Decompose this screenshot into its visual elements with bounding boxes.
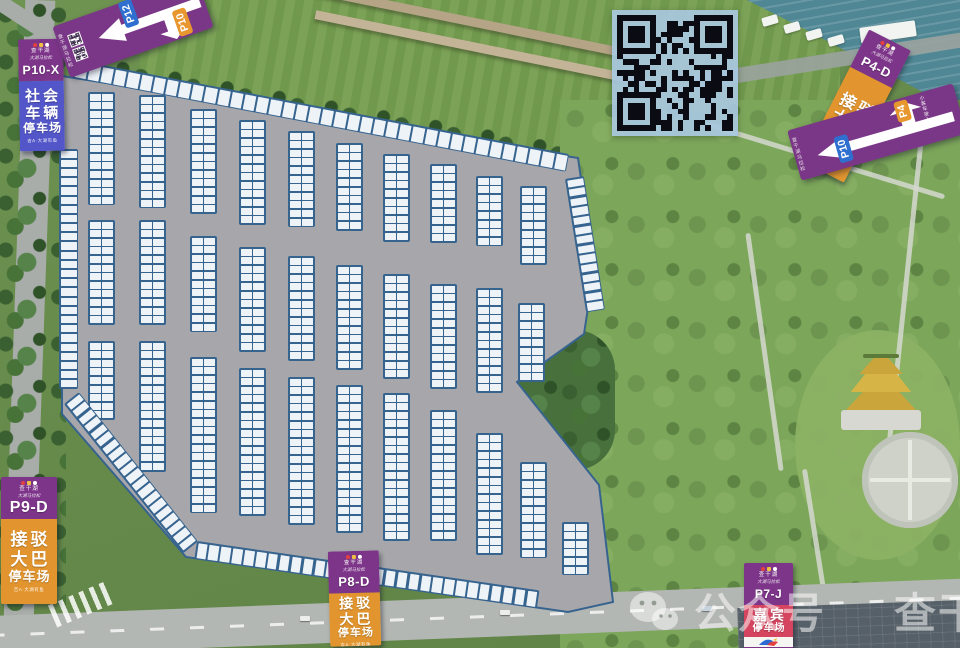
parking-stall bbox=[139, 74, 153, 91]
parking-stall bbox=[141, 222, 152, 229]
parking-stall bbox=[397, 190, 408, 197]
parking-stall bbox=[478, 229, 489, 236]
parking-stall bbox=[522, 231, 533, 238]
parking-stall bbox=[397, 515, 408, 522]
parking-stall bbox=[241, 421, 252, 428]
parking-stall bbox=[444, 472, 455, 479]
parking-stall bbox=[385, 412, 396, 419]
parking-stall bbox=[153, 174, 164, 181]
parking-stall bbox=[204, 238, 215, 245]
parking-stall bbox=[253, 156, 264, 163]
parking-stall bbox=[478, 307, 489, 314]
parking-stall bbox=[302, 490, 313, 497]
parking-stall bbox=[302, 413, 313, 420]
parking-block bbox=[239, 120, 266, 225]
parking-stall bbox=[534, 541, 545, 548]
parking-stall bbox=[444, 372, 455, 379]
parking-stall bbox=[102, 171, 113, 178]
parking-stall bbox=[90, 239, 101, 246]
category-line: 大巴 bbox=[8, 550, 51, 570]
parking-stall bbox=[102, 282, 113, 289]
parking-stall bbox=[432, 532, 443, 539]
parking-stall bbox=[253, 421, 264, 428]
parking-stall bbox=[220, 546, 232, 562]
parking-stall bbox=[192, 393, 203, 400]
parking-stall bbox=[241, 199, 252, 206]
parking-stall bbox=[61, 224, 77, 231]
parking-stall bbox=[338, 170, 349, 177]
parking-stall bbox=[385, 472, 396, 479]
parking-stall bbox=[253, 499, 264, 506]
parking-stall bbox=[478, 512, 489, 519]
parking-stall bbox=[522, 498, 533, 505]
parking-stall bbox=[192, 410, 203, 417]
parking-stall bbox=[153, 403, 164, 410]
parking-stall bbox=[230, 92, 244, 109]
sign-header: 查干湖 大湖马拉松 P8-D bbox=[328, 550, 380, 593]
parking-stall bbox=[302, 201, 313, 208]
parking-stall bbox=[397, 353, 408, 360]
parking-block bbox=[430, 410, 457, 541]
parking-stall bbox=[192, 359, 203, 366]
parking-stall bbox=[397, 327, 408, 334]
parking-stall bbox=[204, 445, 215, 452]
parking-stall bbox=[204, 419, 215, 426]
parking-stall bbox=[61, 325, 77, 332]
parking-stall bbox=[444, 532, 455, 539]
parking-stall bbox=[90, 360, 101, 367]
parking-stall bbox=[290, 266, 301, 273]
parking-stall bbox=[432, 523, 443, 530]
parking-stall bbox=[253, 122, 264, 129]
parking-stall bbox=[520, 339, 531, 346]
parking-stall bbox=[444, 191, 455, 198]
parking-stall bbox=[192, 470, 203, 477]
parking-stall bbox=[302, 404, 313, 411]
parking-stall bbox=[153, 191, 164, 198]
parking-stall bbox=[241, 309, 252, 316]
parking-stall bbox=[241, 208, 252, 215]
parking-stall bbox=[350, 524, 361, 531]
parking-stall bbox=[204, 197, 215, 204]
parking-stall bbox=[302, 379, 313, 386]
parking-stall bbox=[102, 239, 113, 246]
category-line: 社会 bbox=[22, 88, 61, 106]
parking-stall bbox=[585, 292, 602, 302]
parking-stall bbox=[338, 361, 349, 368]
parking-stall bbox=[385, 173, 396, 180]
parking-stall bbox=[90, 188, 101, 195]
parking-stall bbox=[302, 176, 313, 183]
parking-stall bbox=[253, 456, 264, 463]
parking-block bbox=[190, 236, 217, 332]
parking-stall bbox=[290, 150, 301, 157]
parking-stall bbox=[490, 341, 501, 348]
parking-stall bbox=[253, 257, 264, 264]
parking-stall bbox=[253, 130, 264, 137]
parking-stall bbox=[241, 387, 252, 394]
parking-stall bbox=[338, 447, 349, 454]
parking-stall bbox=[153, 122, 164, 129]
parking-stall bbox=[350, 162, 361, 169]
parking-stall bbox=[490, 298, 501, 305]
parking-block bbox=[383, 154, 410, 242]
parking-stall bbox=[432, 577, 444, 593]
parking-stall bbox=[444, 320, 455, 327]
parking-stall bbox=[192, 272, 203, 279]
parking-stall bbox=[290, 318, 301, 325]
parking-stall bbox=[522, 464, 533, 471]
parking-stall bbox=[432, 489, 443, 496]
parking-stall bbox=[302, 318, 313, 325]
parking-stall bbox=[141, 191, 152, 198]
parking-stall bbox=[302, 516, 313, 523]
parking-stall bbox=[338, 205, 349, 212]
parking-stall bbox=[338, 412, 349, 419]
parking-stall bbox=[102, 256, 113, 263]
parking-stall bbox=[574, 225, 591, 235]
parking-stall bbox=[490, 585, 502, 601]
parking-stall bbox=[302, 473, 313, 480]
parking-block bbox=[476, 176, 503, 246]
parking-stall bbox=[432, 463, 443, 470]
parking-stall bbox=[253, 199, 264, 206]
parking-stall bbox=[61, 252, 77, 259]
parking-stall bbox=[241, 395, 252, 402]
parking-stall bbox=[308, 106, 322, 123]
parking-stall bbox=[102, 308, 113, 315]
sign-p8-d-shuttle-bus-parking: 查干湖 大湖马拉松 P8-D 接驳 大巴 停车场 吉A·大湖有鱼 bbox=[328, 550, 381, 646]
parking-stall bbox=[241, 430, 252, 437]
parking-stall bbox=[302, 326, 313, 333]
parking-stall bbox=[338, 498, 349, 505]
parking-stall bbox=[385, 515, 396, 522]
parking-stall bbox=[141, 420, 152, 427]
parking-stall bbox=[232, 548, 244, 564]
parking-stall bbox=[290, 292, 301, 299]
parking-stall bbox=[290, 422, 301, 429]
parking-stall bbox=[432, 412, 443, 419]
parking-stall bbox=[141, 148, 152, 155]
parking-stall bbox=[338, 344, 349, 351]
parking-stall bbox=[253, 208, 264, 215]
parking-stall bbox=[241, 481, 252, 488]
parking-stall bbox=[141, 437, 152, 444]
parking-stall bbox=[253, 190, 264, 197]
parking-stall bbox=[61, 288, 77, 295]
parking-stall bbox=[192, 505, 203, 512]
parking-stall bbox=[61, 316, 77, 323]
parking-stall bbox=[141, 463, 152, 470]
parking-stall bbox=[490, 538, 501, 545]
parking-stall bbox=[241, 130, 252, 137]
parking-stall bbox=[241, 182, 252, 189]
parking-stall bbox=[397, 199, 408, 206]
parking-stall bbox=[90, 386, 101, 393]
parking-stall bbox=[241, 404, 252, 411]
parking-stall bbox=[432, 166, 443, 173]
parking-stall bbox=[153, 463, 164, 470]
parking-stall bbox=[411, 126, 425, 143]
parking-stall bbox=[153, 429, 164, 436]
parking-stall bbox=[444, 489, 455, 496]
parking-stall bbox=[102, 316, 113, 323]
parking-stall bbox=[141, 140, 152, 147]
parking-stall bbox=[204, 179, 215, 186]
parking-stall bbox=[554, 153, 568, 170]
parking-stall bbox=[204, 462, 215, 469]
parking-stall bbox=[385, 353, 396, 360]
parking-stall bbox=[350, 205, 361, 212]
parking-block bbox=[520, 462, 547, 558]
parking-stall bbox=[141, 157, 152, 164]
parking-stall bbox=[126, 72, 140, 89]
parking-stall bbox=[522, 248, 533, 255]
parking-stall bbox=[241, 292, 252, 299]
parking-stall bbox=[350, 353, 361, 360]
parking-stall bbox=[290, 176, 301, 183]
parking-block bbox=[88, 92, 115, 205]
parking-stall bbox=[192, 402, 203, 409]
parking-stall bbox=[432, 174, 443, 181]
parking-stall bbox=[302, 193, 313, 200]
parking-stall bbox=[141, 386, 152, 393]
event-name: 查干湖 bbox=[759, 572, 779, 578]
parking-block bbox=[139, 341, 166, 472]
parking-stall bbox=[397, 284, 408, 291]
parking-stall bbox=[397, 181, 408, 188]
parking-stall bbox=[141, 308, 152, 315]
sign-p10-x-social-vehicle-parking: 查干湖 大湖马拉松 P10-X 社会 车辆 停车场 吉A·大湖有鱼 bbox=[18, 39, 65, 152]
parking-stall bbox=[253, 404, 264, 411]
parking-stall bbox=[478, 238, 489, 245]
parking-stall bbox=[102, 343, 113, 350]
parking-stall bbox=[141, 114, 152, 121]
parking-stall bbox=[338, 275, 349, 282]
parking-stall bbox=[397, 532, 408, 539]
parking-stall bbox=[253, 139, 264, 146]
parking-stall bbox=[102, 111, 113, 118]
parking-stall bbox=[372, 119, 386, 136]
parking-stall bbox=[359, 116, 373, 133]
parking-stall bbox=[102, 128, 113, 135]
parking-stall bbox=[385, 284, 396, 291]
parking-stall bbox=[290, 167, 301, 174]
parking-stall bbox=[534, 256, 545, 263]
parking-stall bbox=[90, 230, 101, 237]
parking-stall bbox=[102, 368, 113, 375]
parking-stall bbox=[241, 274, 252, 281]
parking-stall bbox=[564, 549, 575, 556]
parking-stall bbox=[338, 404, 349, 411]
parking-stall bbox=[338, 284, 349, 291]
parking-stall bbox=[397, 403, 408, 410]
parking-stall bbox=[61, 298, 77, 305]
parking-stall bbox=[576, 549, 587, 556]
parking-stall bbox=[241, 370, 252, 377]
parking-stall bbox=[432, 472, 443, 479]
parking-stall bbox=[338, 327, 349, 334]
parking-stall bbox=[241, 447, 252, 454]
parking-stall bbox=[522, 481, 533, 488]
parking-stall bbox=[192, 306, 203, 313]
parking-stall bbox=[478, 503, 489, 510]
parking-stall bbox=[437, 131, 451, 148]
parking-stall bbox=[397, 472, 408, 479]
parking-stall bbox=[520, 373, 531, 380]
parking-stall bbox=[314, 560, 326, 576]
parking-stall bbox=[350, 412, 361, 419]
parking-stall bbox=[397, 310, 408, 317]
parking-stall bbox=[192, 238, 203, 245]
parking-stall bbox=[302, 133, 313, 140]
parking-stall bbox=[432, 372, 443, 379]
parking-stall bbox=[290, 396, 301, 403]
parking-stall bbox=[443, 578, 455, 594]
parking-stall bbox=[478, 435, 489, 442]
parking-stall bbox=[490, 178, 501, 185]
parking-block bbox=[190, 109, 217, 214]
parking-block bbox=[288, 256, 315, 361]
parking-stall bbox=[141, 316, 152, 323]
parking-stall bbox=[153, 183, 164, 190]
parking-stall bbox=[338, 395, 349, 402]
parking-stall bbox=[165, 79, 179, 96]
parking-stall bbox=[397, 498, 408, 505]
parking-stall bbox=[178, 82, 192, 99]
parking-stall bbox=[478, 298, 489, 305]
parking-stall bbox=[279, 555, 291, 571]
parking-stall bbox=[153, 437, 164, 444]
parking-stall bbox=[338, 301, 349, 308]
parking-stall bbox=[334, 111, 348, 128]
parking-stall bbox=[580, 263, 597, 273]
parking-stall bbox=[478, 178, 489, 185]
parking-stall bbox=[398, 124, 412, 141]
parking-stall bbox=[204, 162, 215, 169]
parking-stall bbox=[432, 226, 443, 233]
parking-stall bbox=[420, 575, 432, 591]
parking-stall bbox=[253, 165, 264, 172]
parking-stall bbox=[241, 507, 252, 514]
parking-stall bbox=[478, 212, 489, 219]
parking-stall bbox=[192, 145, 203, 152]
parking-stall bbox=[302, 158, 313, 165]
parking-stall bbox=[241, 173, 252, 180]
parking-stall bbox=[350, 145, 361, 152]
parking-stall bbox=[338, 222, 349, 229]
parking-stall bbox=[192, 367, 203, 374]
parking-stall bbox=[541, 151, 555, 168]
parking-stall bbox=[338, 153, 349, 160]
parking-stall bbox=[444, 311, 455, 318]
parking-stall bbox=[534, 231, 545, 238]
parking-stall bbox=[444, 380, 455, 387]
parking-stall bbox=[302, 219, 313, 226]
parking-stall bbox=[241, 190, 252, 197]
parking-stall bbox=[490, 203, 501, 210]
parking-stall bbox=[432, 346, 443, 353]
parking-stall bbox=[302, 558, 314, 574]
parking-code: P10-X bbox=[22, 62, 60, 79]
parking-stall bbox=[478, 452, 489, 459]
parking-stall bbox=[241, 326, 252, 333]
parking-stall bbox=[204, 315, 215, 322]
parking-stall bbox=[204, 188, 215, 195]
parking-stall bbox=[338, 507, 349, 514]
sponsor-logos-icon bbox=[761, 566, 777, 571]
parking-stall bbox=[290, 556, 302, 572]
parking-stall bbox=[241, 147, 252, 154]
parking-stall bbox=[397, 463, 408, 470]
parking-stall bbox=[490, 503, 501, 510]
parking-stall bbox=[579, 254, 596, 264]
parking-stall bbox=[478, 529, 489, 536]
parking-stall bbox=[295, 104, 309, 121]
parking-stall bbox=[253, 292, 264, 299]
parking-stall bbox=[350, 455, 361, 462]
parking-stall bbox=[204, 145, 215, 152]
parking-stall bbox=[153, 273, 164, 280]
parking-stall bbox=[290, 404, 301, 411]
parking-stall bbox=[253, 447, 264, 454]
sign-header: 查干湖 大湖马拉松 P10-X bbox=[18, 39, 64, 82]
parking-stall bbox=[290, 326, 301, 333]
parking-stall bbox=[478, 290, 489, 297]
parking-stall bbox=[290, 275, 301, 282]
parking-stall bbox=[102, 403, 113, 410]
parking-stall bbox=[432, 515, 443, 522]
parking-stall bbox=[338, 421, 349, 428]
parking-stall bbox=[520, 356, 531, 363]
parking-stall bbox=[385, 446, 396, 453]
parking-stall bbox=[141, 273, 152, 280]
event-name: 查干湖 bbox=[19, 486, 39, 492]
parking-stall bbox=[90, 128, 101, 135]
parking-stall bbox=[290, 473, 301, 480]
parking-stall bbox=[350, 516, 361, 523]
parking-stall bbox=[153, 140, 164, 147]
parking-stall bbox=[397, 370, 408, 377]
parking-stall bbox=[385, 438, 396, 445]
edge-parking-row bbox=[59, 149, 78, 389]
parking-stall bbox=[478, 384, 489, 391]
parking-stall bbox=[290, 201, 301, 208]
parking-stall bbox=[141, 360, 152, 367]
parking-stall bbox=[192, 462, 203, 469]
parking-stall bbox=[302, 352, 313, 359]
parking-stall bbox=[396, 572, 408, 588]
parking-stall bbox=[432, 303, 443, 310]
parking-stall bbox=[397, 319, 408, 326]
parking-block bbox=[288, 131, 315, 227]
parking-stall bbox=[153, 97, 164, 104]
parking-block bbox=[239, 368, 266, 516]
parking-stall bbox=[478, 195, 489, 202]
parking-stall bbox=[102, 230, 113, 237]
parking-stall bbox=[350, 490, 361, 497]
parking-stall bbox=[490, 384, 501, 391]
parking-stall bbox=[192, 419, 203, 426]
parking-stall bbox=[522, 524, 533, 531]
parking-stall bbox=[350, 361, 361, 368]
parking-stall bbox=[338, 179, 349, 186]
parking-stall bbox=[444, 226, 455, 233]
parking-stall bbox=[302, 292, 313, 299]
parking-stall bbox=[444, 174, 455, 181]
parking-stall bbox=[241, 335, 252, 342]
sign-body: 接驳 大巴 停车场 吉A·大湖有鱼 bbox=[1, 519, 57, 604]
